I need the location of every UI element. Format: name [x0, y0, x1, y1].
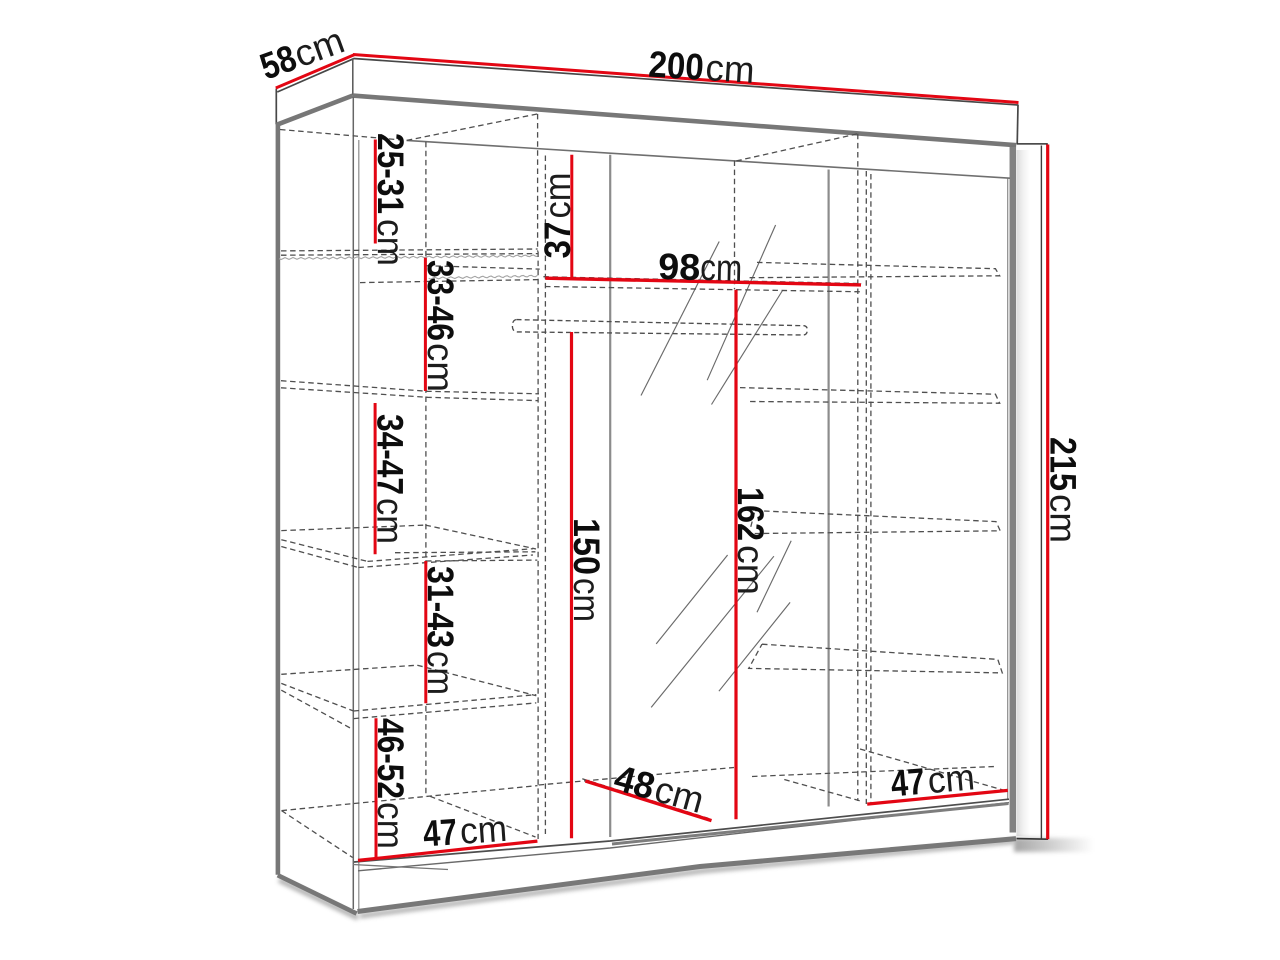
svg-text:cm: cm [700, 247, 743, 289]
svg-text:cm: cm [370, 802, 411, 849]
svg-text:46-52: 46-52 [370, 718, 411, 799]
svg-text:34-47: 34-47 [369, 414, 410, 495]
svg-text:cm: cm [459, 808, 509, 852]
svg-text:31-43: 31-43 [420, 566, 461, 648]
svg-text:cm: cm [1042, 494, 1083, 543]
svg-text:200: 200 [648, 44, 705, 88]
svg-text:215: 215 [1042, 437, 1083, 491]
svg-text:cm: cm [420, 651, 461, 695]
svg-text:150: 150 [566, 518, 607, 575]
svg-text:98: 98 [658, 246, 701, 288]
svg-text:33-46: 33-46 [420, 260, 461, 341]
svg-text:47: 47 [889, 761, 926, 805]
svg-text:cm: cm [566, 578, 607, 622]
svg-text:162: 162 [730, 487, 771, 541]
svg-text:cm: cm [537, 172, 578, 218]
svg-text:cm: cm [370, 219, 411, 266]
svg-text:cm: cm [704, 47, 755, 91]
svg-text:cm: cm [926, 756, 976, 801]
svg-text:37: 37 [537, 221, 578, 258]
svg-text:cm: cm [420, 343, 461, 392]
svg-text:cm: cm [369, 498, 410, 544]
svg-text:25-31: 25-31 [370, 133, 411, 214]
svg-text:47: 47 [422, 811, 459, 854]
svg-text:cm: cm [730, 545, 771, 595]
